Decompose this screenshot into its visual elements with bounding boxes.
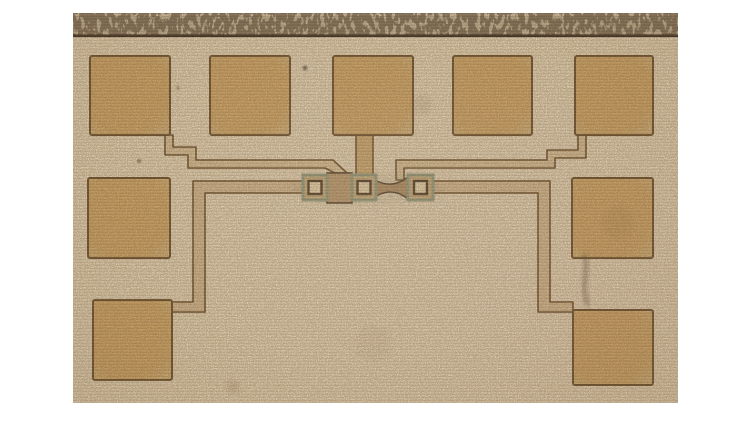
film-grain: [73, 13, 678, 403]
die-photomicrograph: [73, 13, 678, 403]
die-artwork: [73, 13, 678, 403]
page: { "image": { "kind": "photomicrograph", …: [0, 0, 750, 422]
